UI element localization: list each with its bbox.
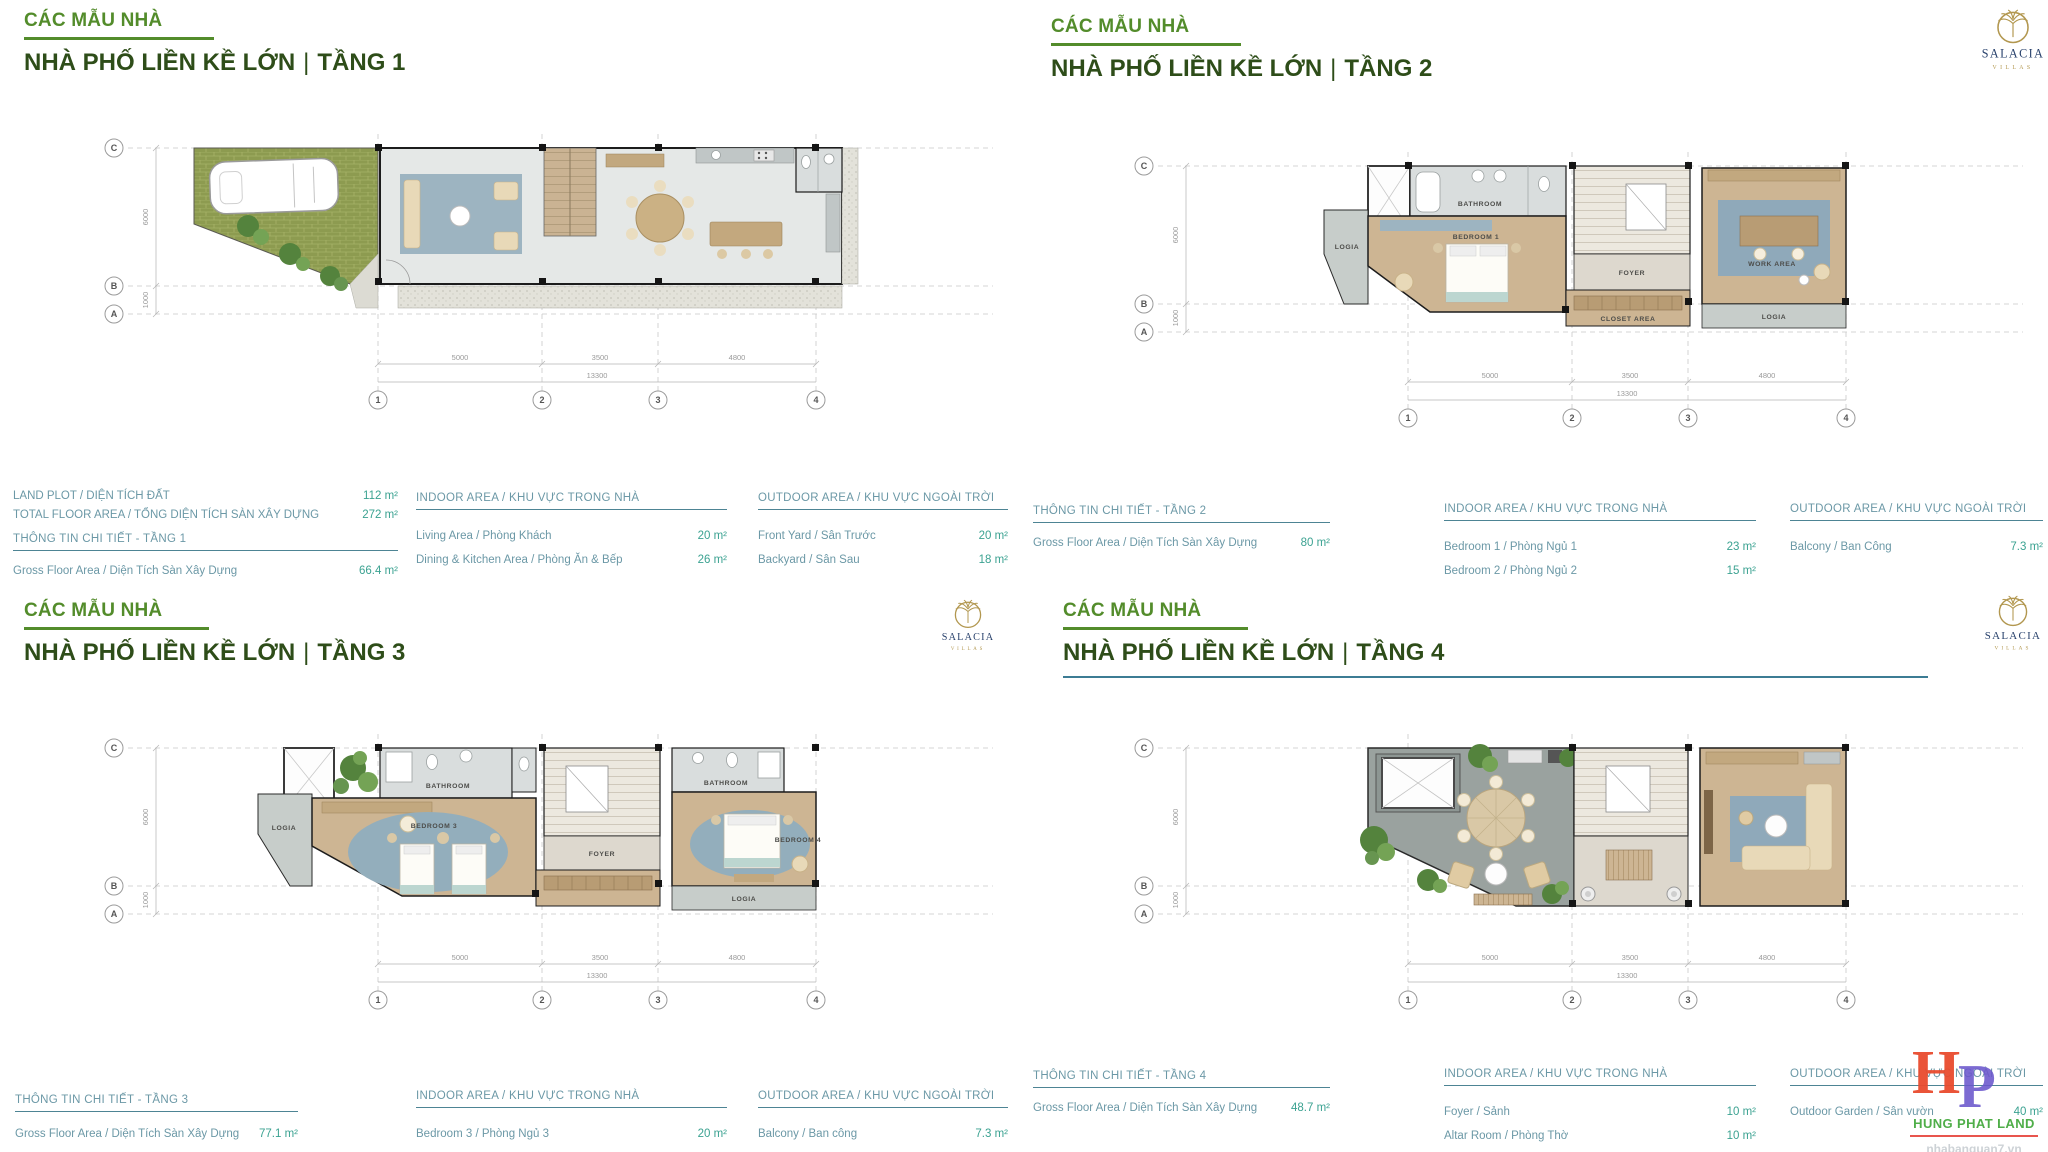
- watermark-website: nhabanquan7.vn: [1898, 1142, 2048, 1152]
- svg-text:1: 1: [375, 995, 380, 1005]
- floor-plan-3: C B A 1 2 3 4 5000 3500 4800 13300 6000 …: [98, 728, 1008, 1028]
- info-label: Bedroom 1 / Phòng Ngủ 1: [1444, 541, 1577, 553]
- logia-left: LOGIA: [1324, 210, 1368, 304]
- floor1-outdoor-table: OUTDOOR AREA / KHU VỰC NGOÀI TRỜI Front …: [758, 492, 1008, 566]
- svg-text:BEDROOM 4: BEDROOM 4: [775, 837, 822, 844]
- palm-icon: [956, 600, 980, 623]
- floor3-outdoor-table: OUTDOOR AREA / KHU VỰC NGOÀI TRỜI Balcon…: [758, 1090, 1008, 1152]
- svg-text:1000: 1000: [141, 292, 150, 309]
- detail-section-header: THÔNG TIN CHI TIẾT - TẦNG 3: [15, 1094, 298, 1112]
- indoor-row: Foyer / Sảnh10 m²: [1444, 1106, 1756, 1118]
- svg-text:13300: 13300: [1617, 971, 1638, 980]
- info-label: Altar Room / Phòng Thờ: [1444, 1130, 1568, 1142]
- floor-label: TẦNG 4: [1356, 639, 1444, 666]
- info-value: 77.1 m²: [259, 1128, 298, 1140]
- svg-text:VILLAS: VILLAS: [1993, 65, 2034, 71]
- floor-label: TẦNG 1: [317, 49, 405, 76]
- detail-section-header: THÔNG TIN CHI TIẾT - TẦNG 2: [1033, 505, 1330, 523]
- title-main: NHÀ PHỐ LIỀN KỀ LỚN: [1063, 639, 1334, 666]
- indoor-row: Dining & Kitchen Area / Phòng Ăn & Bếp26…: [416, 554, 727, 566]
- house-floor1: [375, 144, 858, 308]
- indoor-section-header: INDOOR AREA / KHU VỰC TRONG NHÀ: [416, 492, 727, 510]
- floor4-indoor-table: INDOOR AREA / KHU VỰC TRONG NHÀ Foyer / …: [1444, 1068, 1756, 1142]
- svg-text:SALACIA: SALACIA: [1982, 47, 2044, 61]
- page-title: NHÀ PHỐ LIỀN KỀ LỚN|TẦNG 3: [24, 639, 405, 667]
- svg-text:CLOSET AREA: CLOSET AREA: [1600, 316, 1655, 323]
- svg-text:1: 1: [1405, 995, 1410, 1005]
- closet-area: CLOSET AREA: [1566, 290, 1690, 326]
- svg-text:13300: 13300: [587, 971, 608, 980]
- svg-text:VILLAS: VILLAS: [1994, 646, 2031, 652]
- svg-text:2: 2: [539, 395, 544, 405]
- logia-right: LOGIA: [1702, 304, 1846, 328]
- svg-text:5000: 5000: [452, 353, 469, 362]
- hp-logo-icon: H P: [1898, 1042, 2048, 1112]
- info-value: 23 m²: [1727, 541, 1756, 553]
- page-title: NHÀ PHỐ LIỀN KỀ LỚN|TẦNG 4: [1063, 639, 1444, 667]
- svg-text:4800: 4800: [729, 353, 746, 362]
- title-separator: |: [1322, 55, 1344, 82]
- floor2-outdoor-table: OUTDOOR AREA / KHU VỰC NGOÀI TRỜI Balcon…: [1790, 503, 2043, 553]
- svg-text:5000: 5000: [1482, 371, 1499, 380]
- title-separator: |: [1334, 639, 1356, 666]
- info-value: 26 m²: [698, 554, 727, 566]
- eyebrow-rule: [1051, 43, 1241, 46]
- outdoor-row: Front Yard / Sân Trước20 m²: [758, 530, 1008, 542]
- foyer: FOYER: [1574, 254, 1690, 290]
- info-label: Gross Floor Area / Diện Tích Sàn Xây Dựn…: [15, 1128, 239, 1140]
- svg-text:FOYER: FOYER: [589, 851, 615, 858]
- svg-text:3: 3: [655, 395, 660, 405]
- svg-text:3500: 3500: [592, 953, 609, 962]
- svg-text:C: C: [111, 143, 118, 153]
- hung-phat-land-watermark: H P HUNG PHAT LAND nhabanquan7.vn 0918.0…: [1898, 1042, 2048, 1152]
- floor-label: TẦNG 3: [317, 639, 405, 666]
- svg-text:4: 4: [1843, 413, 1848, 423]
- outdoor-row: Backyard / Sân Sau18 m²: [758, 554, 1008, 566]
- palm-icon: [2000, 596, 2026, 621]
- info-label: Gross Floor Area / Diện Tích Sàn Xây Dựn…: [1033, 537, 1257, 549]
- info-label: Gross Floor Area / Diện Tích Sàn Xây Dựn…: [1033, 1102, 1257, 1114]
- wardrobe-room: [536, 870, 660, 906]
- svg-text:3500: 3500: [1622, 953, 1639, 962]
- info-label: Bedroom 2 / Phòng Ngủ 2: [1444, 565, 1577, 577]
- info-value: 20 m²: [979, 530, 1008, 542]
- work-area: WORK AREA: [1702, 168, 1846, 304]
- stair-core: [544, 748, 660, 836]
- gross-floor-area-row: Gross Floor Area / Diện Tích Sàn Xây Dựn…: [1033, 1102, 1330, 1114]
- eyebrow-label: CÁC MẪU NHÀ: [1051, 16, 1432, 38]
- bathroom: [796, 148, 842, 192]
- svg-text:13300: 13300: [587, 371, 608, 380]
- bathroom-right: BATHROOM: [672, 748, 784, 792]
- svg-text:VILLAS: VILLAS: [951, 647, 985, 652]
- floor1-indoor-table: INDOOR AREA / KHU VỰC TRONG NHÀ Living A…: [416, 492, 727, 566]
- indoor-section-header: INDOOR AREA / KHU VỰC TRONG NHÀ: [1444, 503, 1756, 521]
- palm-icon: [1998, 10, 2027, 37]
- info-value: 20 m²: [698, 530, 727, 542]
- land-plot-row: LAND PLOT / DIỆN TÍCH ĐẤT112 m²: [13, 490, 398, 502]
- salacia-logo: SALACIA VILLAS: [1985, 594, 2041, 656]
- floor1-summary-table: LAND PLOT / DIỆN TÍCH ĐẤT112 m² TOTAL FL…: [13, 490, 398, 577]
- floor-plan-2: C B A 1 2 3 4 5000 3500 4800 13300 6000 …: [1128, 146, 2048, 446]
- info-value: 18 m²: [979, 554, 1008, 566]
- car: [209, 158, 339, 214]
- title-main: NHÀ PHỐ LIỀN KỀ LỚN: [24, 49, 295, 76]
- title-separator: |: [295, 49, 317, 76]
- floor4-header: CÁC MẪU NHÀ NHÀ PHỐ LIỀN KỀ LỚN|TẦNG 4: [1063, 600, 1444, 667]
- floor3-indoor-table: INDOOR AREA / KHU VỰC TRONG NHÀ Bedroom …: [416, 1090, 727, 1152]
- svg-text:B: B: [111, 281, 118, 291]
- indoor-row: Bedroom 3 / Phòng Ngủ 320 m²: [416, 1128, 727, 1140]
- info-label: LAND PLOT / DIỆN TÍCH ĐẤT: [13, 490, 170, 502]
- floor2-header: CÁC MẪU NHÀ NHÀ PHỐ LIỀN KỀ LỚN|TẦNG 2: [1051, 16, 1432, 83]
- svg-text:A: A: [1141, 327, 1148, 337]
- svg-text:LOGIA: LOGIA: [272, 825, 297, 832]
- svg-text:5000: 5000: [1482, 953, 1499, 962]
- page-title: NHÀ PHỐ LIỀN KỀ LỚN|TẦNG 1: [24, 49, 405, 77]
- svg-text:LOGIA: LOGIA: [1762, 314, 1787, 321]
- outdoor-section-header: OUTDOOR AREA / KHU VỰC NGOÀI TRỜI: [758, 1090, 1008, 1108]
- title-main: NHÀ PHỐ LIỀN KỀ LỚN: [1051, 55, 1322, 82]
- svg-text:6000: 6000: [141, 809, 150, 826]
- floor3-header: CÁC MẪU NHÀ NHÀ PHỐ LIỀN KỀ LỚN|TẦNG 3: [24, 600, 405, 667]
- foyer: FOYER: [544, 836, 660, 870]
- svg-text:B: B: [1141, 299, 1148, 309]
- eyebrow-label: CÁC MẪU NHÀ: [1063, 600, 1444, 622]
- gross-floor-area-row: Gross Floor Area / Diện Tích Sàn Xây Dựn…: [13, 565, 398, 577]
- svg-text:4: 4: [813, 395, 818, 405]
- svg-text:FOYER: FOYER: [1619, 270, 1645, 277]
- detail-section-header: THÔNG TIN CHI TIẾT - TẦNG 4: [1033, 1070, 1330, 1088]
- staircase: [544, 148, 596, 236]
- stair-core: [1574, 748, 1688, 836]
- svg-text:BEDROOM 1: BEDROOM 1: [1453, 234, 1500, 241]
- svg-text:4800: 4800: [1759, 953, 1776, 962]
- info-label: Bedroom 3 / Phòng Ngủ 3: [416, 1128, 549, 1140]
- indoor-row: Bedroom 2 / Phòng Ngủ 215 m²: [1444, 565, 1756, 577]
- svg-text:4: 4: [1843, 995, 1848, 1005]
- svg-text:A: A: [1141, 909, 1148, 919]
- svg-text:B: B: [1141, 881, 1148, 891]
- svg-text:1000: 1000: [1171, 310, 1180, 327]
- indoor-row: Living Area / Phòng Khách20 m²: [416, 530, 727, 542]
- svg-text:3500: 3500: [592, 353, 609, 362]
- svg-text:C: C: [1141, 743, 1148, 753]
- svg-text:C: C: [1141, 161, 1148, 171]
- floor-label: TẦNG 2: [1344, 55, 1432, 82]
- floor2-indoor-table: INDOOR AREA / KHU VỰC TRONG NHÀ Bedroom …: [1444, 503, 1756, 577]
- floor-plan-4: C B A 1 2 3 4 5000 3500 4800 13300 6000 …: [1128, 728, 2048, 1028]
- info-value: 10 m²: [1727, 1130, 1756, 1142]
- svg-text:B: B: [111, 881, 118, 891]
- svg-text:2: 2: [1569, 995, 1574, 1005]
- svg-text:A: A: [111, 309, 118, 319]
- svg-text:LOGIA: LOGIA: [1335, 244, 1360, 251]
- info-label: Backyard / Sân Sau: [758, 554, 860, 566]
- info-label: Foyer / Sảnh: [1444, 1106, 1510, 1118]
- console-cabinet: [606, 154, 664, 167]
- eyebrow-label: CÁC MẪU NHÀ: [24, 600, 405, 622]
- floor3-summary-table: THÔNG TIN CHI TIẾT - TẦNG 3 Gross Floor …: [15, 1094, 298, 1140]
- svg-text:2: 2: [1569, 413, 1574, 423]
- info-value: 112 m²: [363, 490, 398, 502]
- plants: [333, 751, 378, 794]
- gross-floor-area-row: Gross Floor Area / Diện Tích Sàn Xây Dựn…: [1033, 537, 1330, 549]
- svg-text:WORK AREA: WORK AREA: [1748, 261, 1796, 268]
- svg-text:SALACIA: SALACIA: [942, 632, 994, 643]
- outdoor-section-header: OUTDOOR AREA / KHU VỰC NGOÀI TRỜI: [758, 492, 1008, 510]
- svg-text:1: 1: [375, 395, 380, 405]
- svg-text:6000: 6000: [1171, 809, 1180, 826]
- info-label: Balcony / Ban công: [758, 1128, 857, 1140]
- info-value: 20 m²: [698, 1128, 727, 1140]
- svg-text:BATHROOM: BATHROOM: [426, 783, 470, 790]
- info-label: Gross Floor Area / Diện Tích Sàn Xây Dựn…: [13, 565, 237, 577]
- bathroom-left: BATHROOM: [380, 748, 536, 798]
- floor1-header: CÁC MẪU NHÀ NHÀ PHỐ LIỀN KỀ LỚN|TẦNG 1: [24, 10, 405, 77]
- eyebrow-label: CÁC MẪU NHÀ: [24, 10, 405, 32]
- living-room: [400, 174, 522, 254]
- floor2-summary-table: THÔNG TIN CHI TIẾT - TẦNG 2 Gross Floor …: [1033, 505, 1330, 549]
- svg-text:4800: 4800: [1759, 371, 1776, 380]
- svg-text:BATHROOM: BATHROOM: [1458, 201, 1502, 208]
- eyebrow-rule: [24, 627, 209, 630]
- svg-text:1: 1: [1405, 413, 1410, 423]
- info-value: 66.4 m²: [359, 565, 398, 577]
- title-main: NHÀ PHỐ LIỀN KỀ LỚN: [24, 639, 295, 666]
- info-label: Living Area / Phòng Khách: [416, 530, 552, 542]
- svg-text:6000: 6000: [141, 209, 150, 226]
- logia-left: LOGIA: [258, 794, 312, 886]
- info-value: 48.7 m²: [1291, 1102, 1330, 1114]
- info-value: 7.3 m²: [2010, 541, 2043, 553]
- detail-section-header: THÔNG TIN CHI TIẾT - TẦNG 1: [13, 533, 398, 551]
- indoor-section-header: INDOOR AREA / KHU VỰC TRONG NHÀ: [416, 1090, 727, 1108]
- floor4-divider-rule: [1063, 676, 1928, 678]
- watermark-rule: [1910, 1135, 2038, 1137]
- svg-text:1000: 1000: [141, 892, 150, 909]
- floor-plan-1: C B A 1 2 3 4 5000 3500 4800 13300 6000 …: [98, 128, 1008, 428]
- bedroom-4: BEDROOM 4: [672, 792, 821, 886]
- svg-text:SALACIA: SALACIA: [1985, 630, 2041, 642]
- svg-text:BATHROOM: BATHROOM: [704, 780, 748, 787]
- bathroom: BATHROOM: [1410, 166, 1566, 216]
- outdoor-row: Balcony / Ban công7.3 m²: [758, 1128, 1008, 1140]
- svg-text:3: 3: [1685, 995, 1690, 1005]
- svg-text:3: 3: [655, 995, 660, 1005]
- svg-text:BEDROOM 3: BEDROOM 3: [411, 823, 458, 830]
- title-separator: |: [295, 639, 317, 666]
- hp-logo-letter-p: P: [1958, 1052, 1996, 1123]
- svg-text:13300: 13300: [1617, 389, 1638, 398]
- info-value: 15 m²: [1727, 565, 1756, 577]
- salacia-logo: SALACIA VILLAS: [1982, 8, 2044, 76]
- total-floor-area-row: TOTAL FLOOR AREA / TỔNG DIỆN TÍCH SÀN XÂ…: [13, 509, 398, 521]
- svg-text:4: 4: [813, 995, 818, 1005]
- bedroom-1: BEDROOM 1: [1368, 216, 1566, 312]
- info-value: 10 m²: [1727, 1106, 1756, 1118]
- info-value: 272 m²: [362, 509, 398, 521]
- page-title: NHÀ PHỐ LIỀN KỀ LỚN|TẦNG 2: [1051, 55, 1432, 83]
- svg-text:C: C: [111, 743, 118, 753]
- svg-text:6000: 6000: [1171, 227, 1180, 244]
- info-label: TOTAL FLOOR AREA / TỔNG DIỆN TÍCH SÀN XÂ…: [13, 509, 319, 521]
- indoor-section-header: INDOOR AREA / KHU VỰC TRONG NHÀ: [1444, 1068, 1756, 1086]
- gross-floor-area-row: Gross Floor Area / Diện Tích Sàn Xây Dựn…: [15, 1128, 298, 1140]
- info-label: Dining & Kitchen Area / Phòng Ăn & Bếp: [416, 554, 623, 566]
- svg-text:4800: 4800: [729, 953, 746, 962]
- svg-text:A: A: [111, 909, 118, 919]
- indoor-row: Bedroom 1 / Phòng Ngủ 123 m²: [1444, 541, 1756, 553]
- outdoor-row: Balcony / Ban Công7.3 m²: [1790, 541, 2043, 553]
- info-label: Balcony / Ban Công: [1790, 541, 1892, 553]
- landing-foyer: [1574, 836, 1688, 906]
- salacia-logo: SALACIA VILLAS: [942, 598, 994, 656]
- brochure-canvas: CÁC MẪU NHÀ NHÀ PHỐ LIỀN KỀ LỚN|TẦNG 1 C…: [0, 0, 2048, 1152]
- svg-text:2: 2: [539, 995, 544, 1005]
- bedroom-3: BEDROOM 3: [312, 798, 536, 896]
- svg-text:3: 3: [1685, 413, 1690, 423]
- indoor-row: Altar Room / Phòng Thờ10 m²: [1444, 1130, 1756, 1142]
- eyebrow-rule: [1063, 627, 1248, 630]
- info-value: 80 m²: [1301, 537, 1330, 549]
- floor4-summary-table: THÔNG TIN CHI TIẾT - TẦNG 4 Gross Floor …: [1033, 1070, 1330, 1114]
- eyebrow-rule: [24, 37, 214, 40]
- svg-text:LOGIA: LOGIA: [732, 896, 757, 903]
- svg-text:3500: 3500: [1622, 371, 1639, 380]
- info-label: Front Yard / Sân Trước: [758, 530, 876, 542]
- svg-text:5000: 5000: [452, 953, 469, 962]
- svg-text:1000: 1000: [1171, 892, 1180, 909]
- stair-core: [1574, 166, 1690, 254]
- outdoor-section-header: OUTDOOR AREA / KHU VỰC NGOÀI TRỜI: [1790, 503, 2043, 521]
- altar-room: [1700, 748, 1846, 906]
- logia-right: LOGIA: [672, 886, 816, 910]
- info-value: 7.3 m²: [975, 1128, 1008, 1140]
- hp-logo-letter-h: H: [1912, 1038, 1960, 1109]
